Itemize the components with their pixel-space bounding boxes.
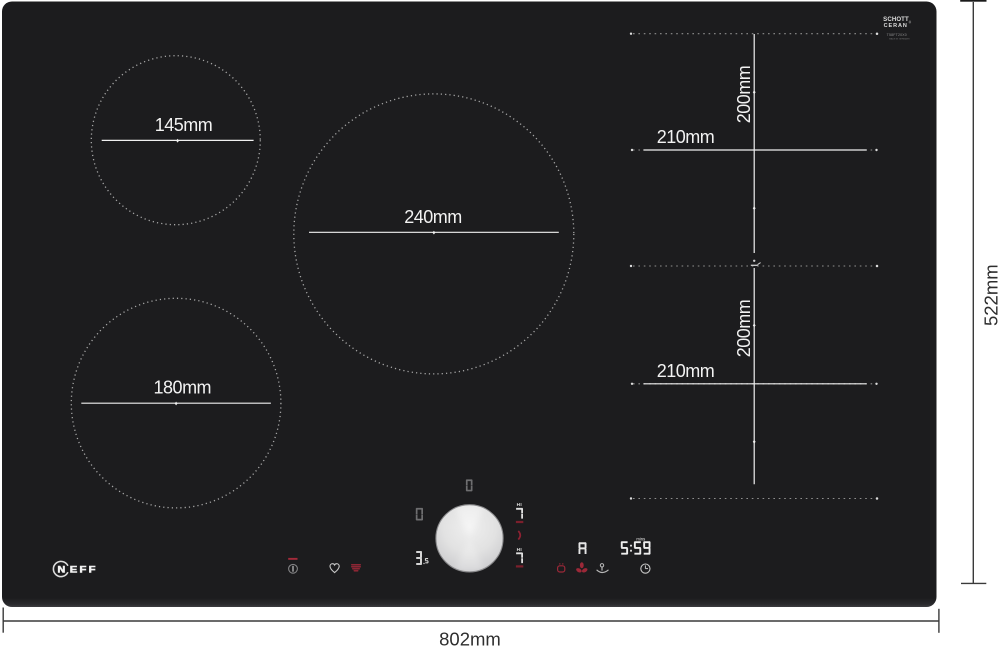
svg-text:HI: HI [517, 502, 523, 508]
svg-text:SCHOTT: SCHOTT [883, 16, 909, 23]
svg-text:HI: HI [517, 547, 523, 553]
svg-text:802mm: 802mm [439, 629, 501, 646]
svg-text:200mm: 200mm [734, 300, 754, 358]
svg-text:180mm: 180mm [154, 377, 212, 397]
svg-text:EFF: EFF [70, 565, 98, 575]
svg-text:210mm: 210mm [657, 361, 715, 381]
svg-text:N: N [58, 565, 66, 575]
svg-text:240mm: 240mm [404, 207, 462, 227]
svg-text:210mm: 210mm [657, 127, 715, 147]
svg-text:522mm: 522mm [981, 264, 1000, 326]
svg-text:MADE IN GERMANY: MADE IN GERMANY [889, 37, 910, 40]
svg-text:T58FT20X0: T58FT20X0 [887, 33, 907, 37]
svg-text:CERAN: CERAN [884, 23, 908, 29]
svg-text:200mm: 200mm [734, 66, 754, 124]
svg-text:mins: mins [636, 536, 645, 541]
svg-text:145mm: 145mm [155, 115, 213, 135]
